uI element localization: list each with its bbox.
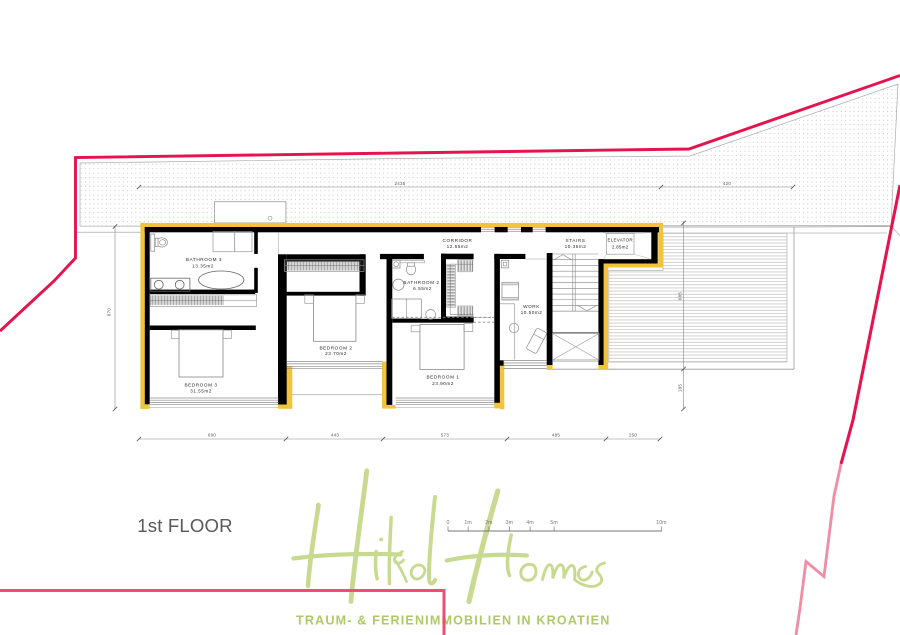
svg-text:13.35m2: 13.35m2 [192,263,214,268]
svg-text:1st FLOOR: 1st FLOOR [137,515,232,536]
svg-text:31.55m2: 31.55m2 [190,388,212,393]
svg-text:10.35m2: 10.35m2 [565,244,587,249]
svg-text:485: 485 [552,432,560,437]
svg-text:CORRIDOR: CORRIDOR [443,238,473,243]
svg-text:2.85m2: 2.85m2 [612,245,629,250]
svg-text:870: 870 [107,308,112,316]
svg-text:6.55m2: 6.55m2 [413,286,432,291]
svg-text:690: 690 [208,432,216,437]
svg-text:TRAUM- & FERIENIMMOBILIEN IN K: TRAUM- & FERIENIMMOBILIEN IN KROATIEN [296,614,610,628]
svg-text:250: 250 [629,432,637,437]
svg-text:12.55m2: 12.55m2 [447,244,469,249]
svg-text:BEDROOM 2: BEDROOM 2 [319,345,352,350]
svg-text:BATHROOM 2: BATHROOM 2 [403,280,439,285]
svg-text:23.90m2: 23.90m2 [432,381,454,386]
svg-text:23.70m2: 23.70m2 [325,351,347,356]
svg-text:2m: 2m [485,520,492,526]
svg-text:1m: 1m [464,520,471,526]
svg-text:BEDROOM 3: BEDROOM 3 [184,382,217,387]
svg-text:573: 573 [441,432,449,437]
svg-text:BEDROOM 1: BEDROOM 1 [426,375,459,380]
svg-text:0: 0 [447,520,450,526]
svg-text:ELEVATOR: ELEVATOR [608,238,634,243]
svg-text:BATHROOM 3: BATHROOM 3 [186,257,222,262]
svg-text:2435: 2435 [395,181,406,186]
svg-text:STAIRS: STAIRS [566,238,586,243]
svg-text:WORK: WORK [523,304,540,309]
svg-text:10.50m2: 10.50m2 [521,310,543,315]
svg-text:420: 420 [723,181,731,186]
svg-text:10m: 10m [656,520,666,526]
svg-text:4m: 4m [526,520,533,526]
svg-text:3m: 3m [506,520,513,526]
svg-text:185: 185 [677,384,682,392]
svg-text:5m: 5m [550,520,557,526]
svg-text:685: 685 [677,292,682,300]
svg-text:443: 443 [331,432,339,437]
